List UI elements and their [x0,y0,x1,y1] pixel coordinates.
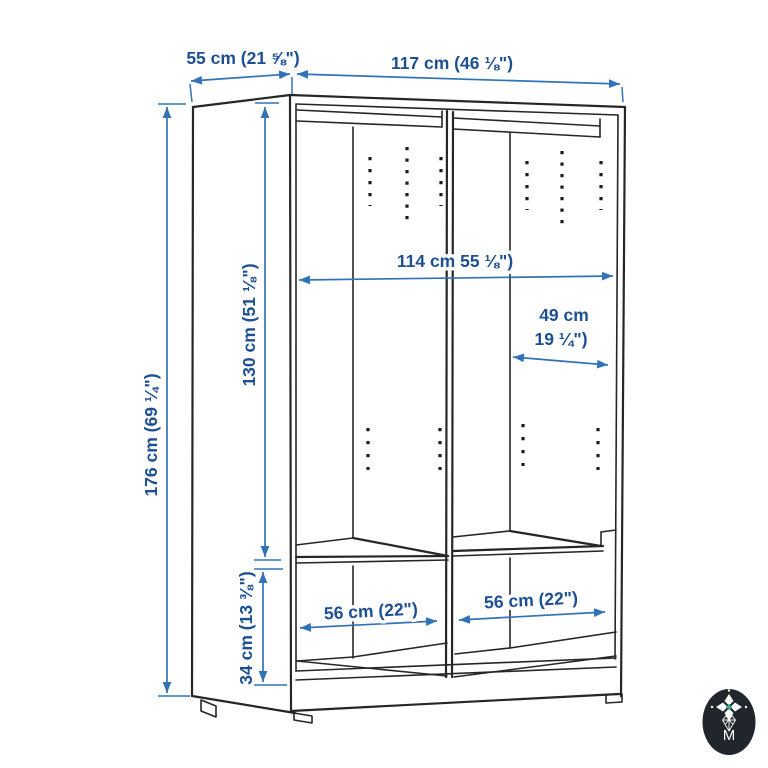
compartment-width-label-line1: 49 cm [539,305,589,325]
foot-front-left [294,713,312,723]
interior-width-dimension-label: 114 cm 55 ⅛") [397,251,513,271]
brand-logo: M [703,689,756,755]
wardrobe-drawing [192,95,625,723]
base-height-dimension-label: 34 cm (13 ⅜") [236,571,256,684]
shelf-width-right-dimension-line [459,612,605,620]
top-rails [297,110,600,137]
shelf-width-right-label: 56 cm (22") [484,588,579,613]
wardrobe-diagram-canvas: 55 cm (21 ⅝") 117 cm (46 ⅛") 176 cm (69 … [0,0,768,768]
compartment-width-label-line2: 19 ¼") [534,329,587,349]
right-shelf [453,530,616,556]
shelf-width-left-dimension-line [300,621,437,628]
logo-letter-m: M [723,727,736,744]
front-frame [290,95,625,723]
foot-left-back [201,700,216,717]
base-plinth [296,632,616,680]
width-dimension-line [297,74,620,84]
interior-width-dimension-line [299,276,613,280]
compartment-width-dimension-line [513,357,608,365]
depth-dimension-label: 55 cm (21 ⅝") [186,48,299,68]
depth-dimension-line [191,74,290,81]
height-dimension-label: 176 cm (69 ¼") [141,373,161,496]
dimension-annotations: 55 cm (21 ⅝") 117 cm (46 ⅛") 176 cm (69 … [141,48,623,696]
interior-height-dimension-label: 130 cm (51 ⅛") [239,263,259,386]
product-dimension-diagram: 55 cm (21 ⅝") 117 cm (46 ⅛") 176 cm (69 … [0,0,768,768]
width-dimension-label: 117 cm (46 ⅛") [391,53,513,73]
left-shelf [296,538,448,563]
interior-corner-lines [353,127,510,658]
shelf-width-left-label: 56 cm (22") [323,599,418,624]
center-divider [446,111,453,677]
